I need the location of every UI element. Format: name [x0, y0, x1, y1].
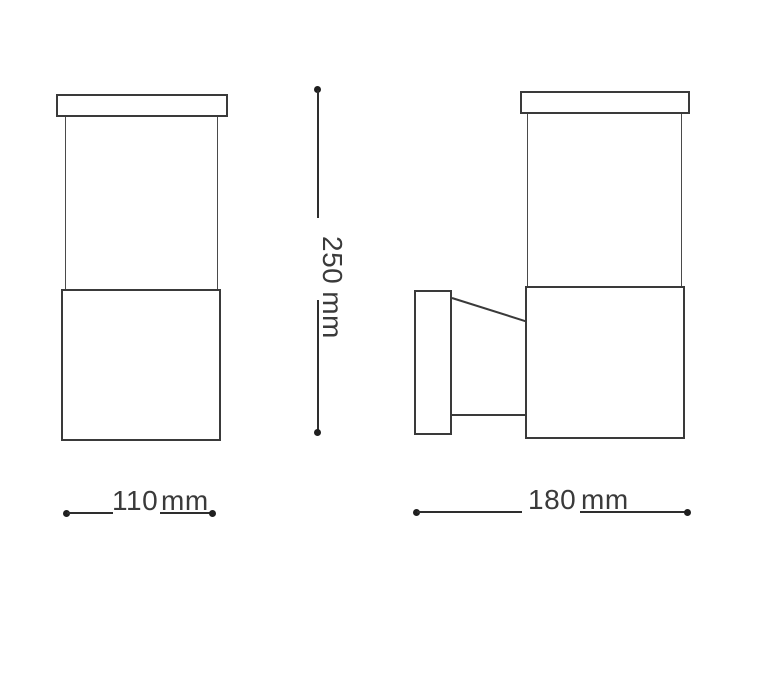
front-base-block — [61, 289, 221, 441]
depth-dimension-right-dot — [684, 509, 691, 516]
front-diffuser — [65, 117, 218, 289]
depth-dimension-value: 180 — [528, 485, 576, 515]
technical-drawing: 250mm 110 mm 180 mm — [0, 0, 764, 680]
height-unit: mm — [317, 291, 348, 339]
height-dimension-label: 250mm — [317, 236, 347, 339]
width-dimension-line-left — [67, 512, 113, 514]
side-cap — [520, 91, 690, 114]
side-base-block — [525, 286, 685, 439]
height-dimension-line-lower — [317, 300, 319, 431]
front-cap — [56, 94, 228, 117]
height-dimension-bottom-dot — [314, 429, 321, 436]
bracket-bottom-edge-line — [452, 414, 525, 416]
wall-mount-plate — [414, 290, 452, 435]
height-dimension-line-upper — [317, 90, 319, 218]
width-dimension-value: 110 — [112, 486, 158, 516]
depth-dimension-line-right — [580, 511, 686, 513]
width-dimension-right-dot — [209, 510, 216, 517]
bracket-top-edge-line — [452, 297, 526, 322]
height-value: 250 — [317, 236, 348, 284]
side-diffuser — [527, 114, 682, 286]
width-dimension-line-right — [160, 512, 210, 514]
depth-dimension-line-left — [417, 511, 522, 513]
